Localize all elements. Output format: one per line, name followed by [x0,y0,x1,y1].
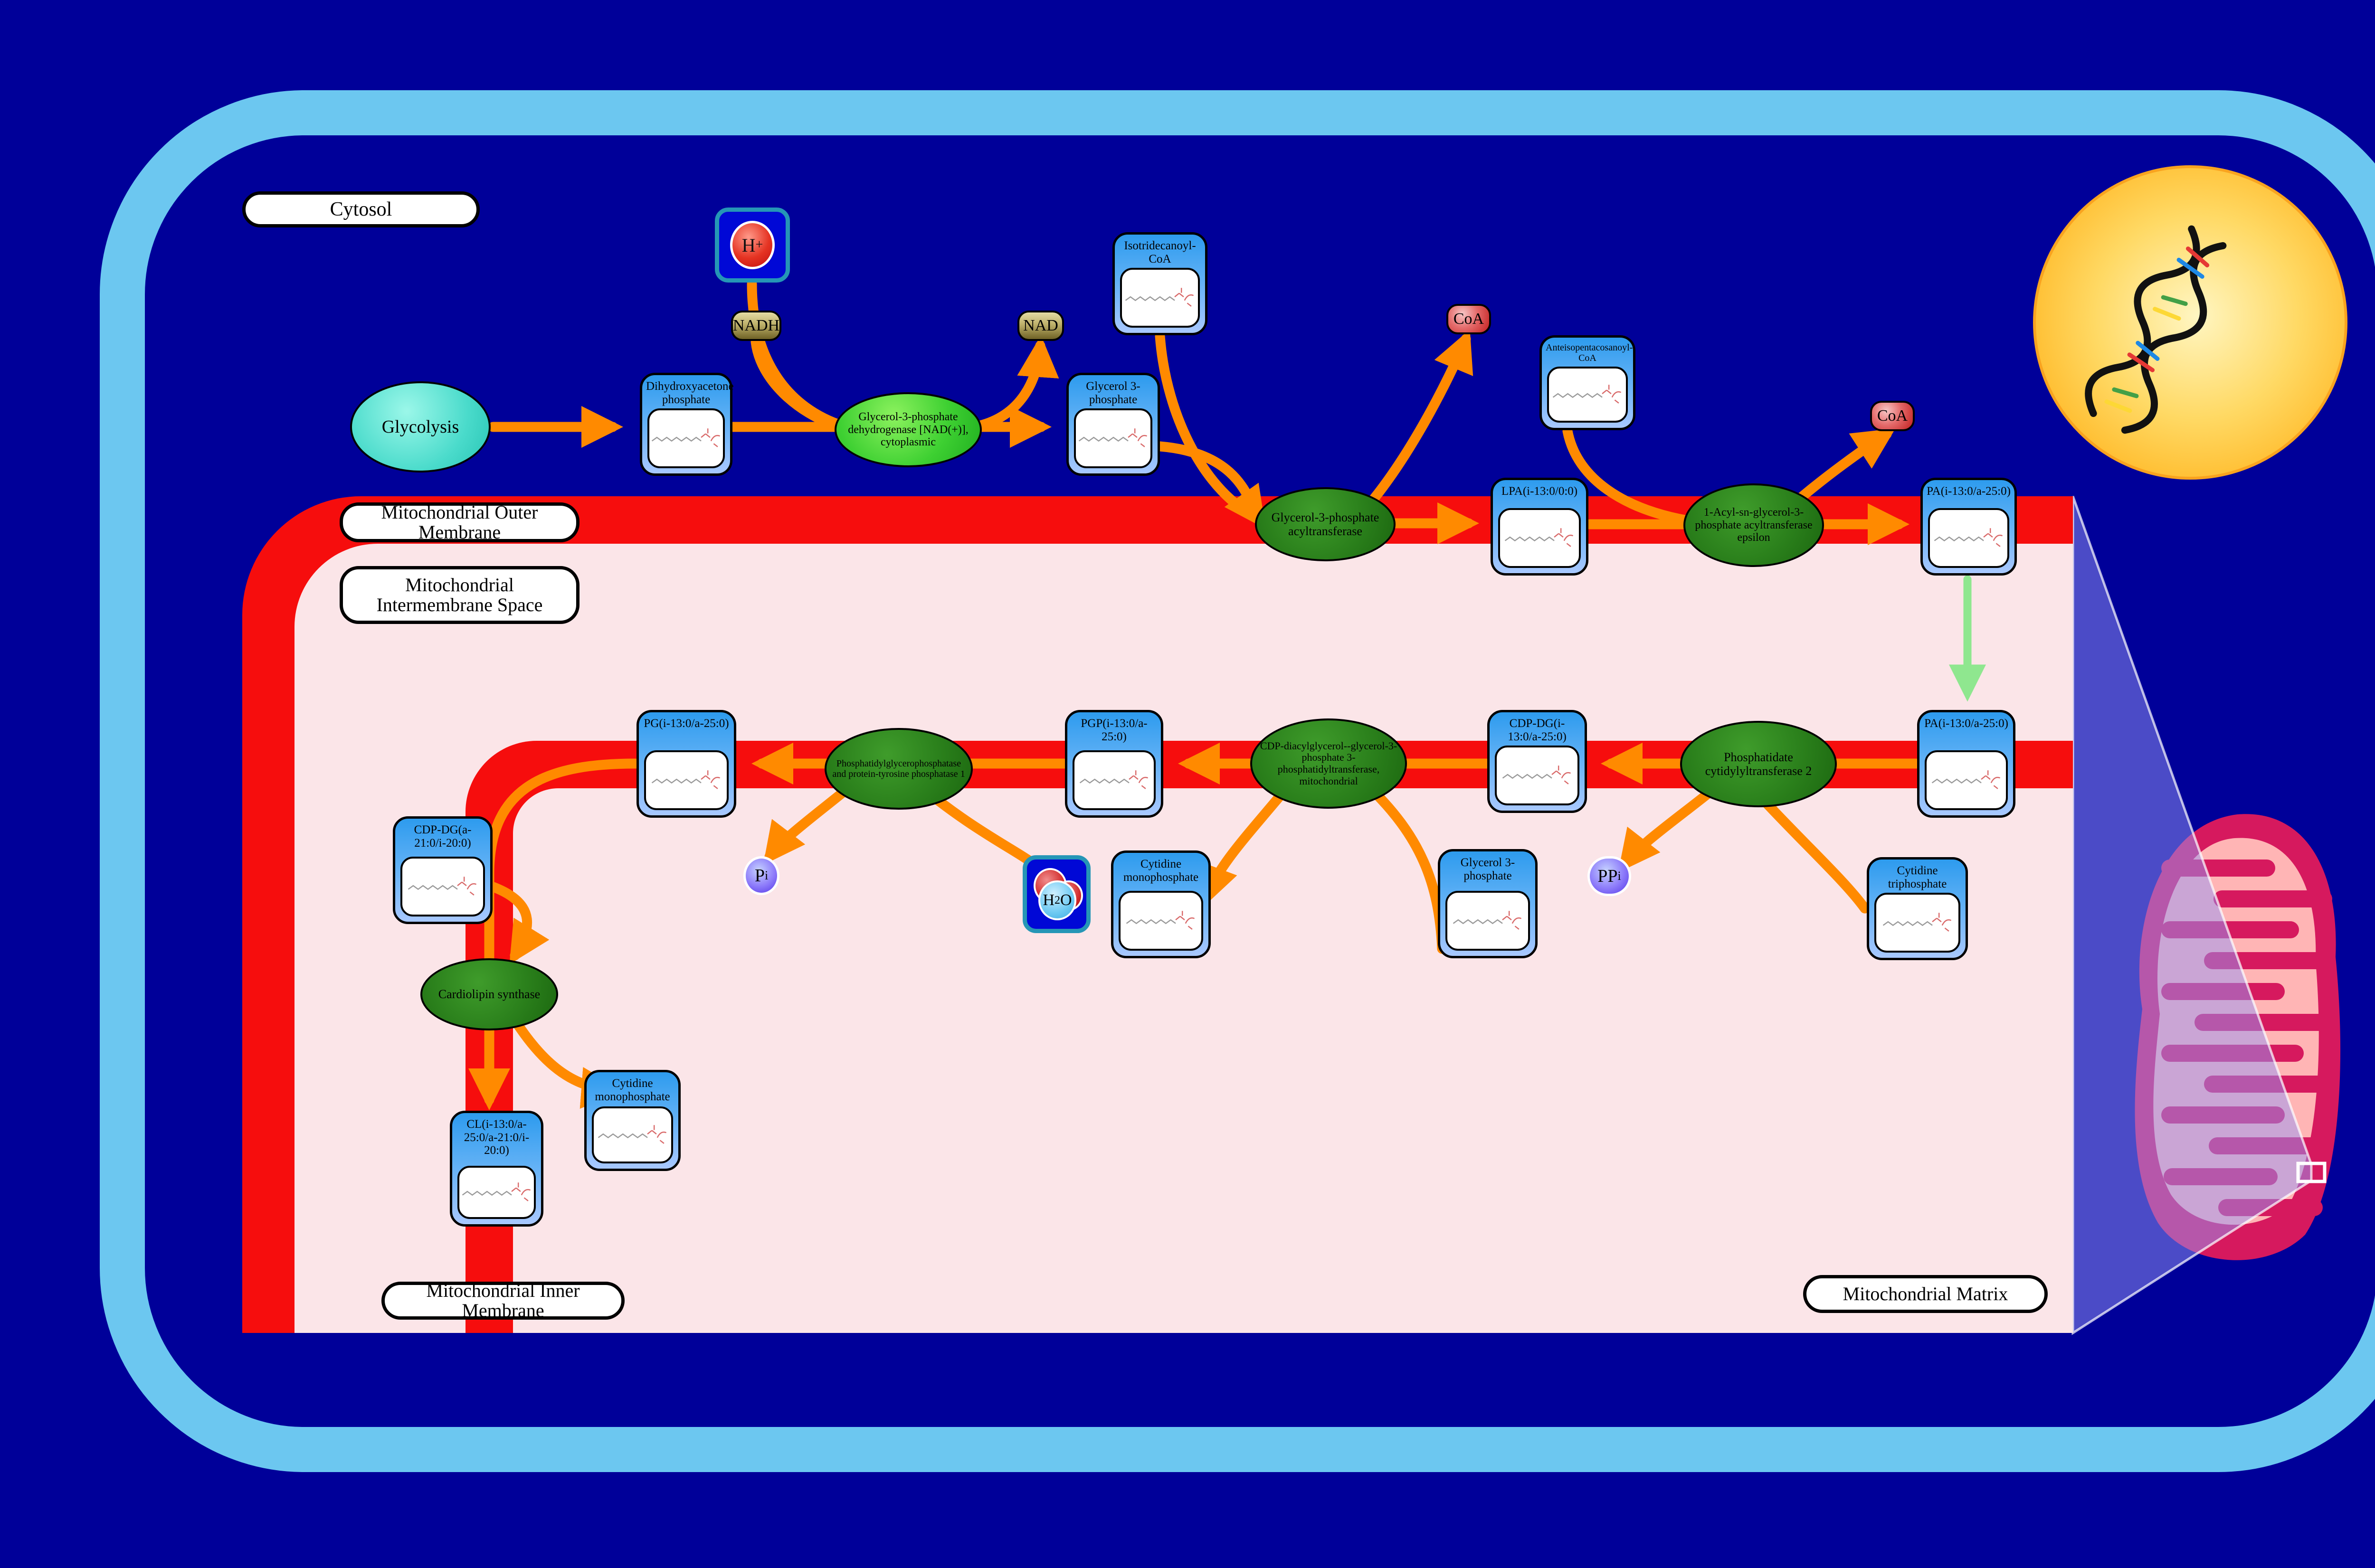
h2o-label: H2O [1038,880,1076,920]
metabolite-ctp[interactable]: Cytidine triphosphate [1867,857,1968,960]
molecule-structure [1498,508,1581,568]
nad-badge[interactable]: NAD [1017,311,1064,341]
metabolite-title: PGP(i-13:0/a-25:0) [1067,712,1161,744]
metabolite-title: Anteisopentacosanoyl-CoA [1542,338,1633,364]
metabolite-title: PA(i-13:0/a-25:0) [1919,712,2013,731]
metabolite-anteisopentacosanoyl-coa[interactable]: Anteisopentacosanoyl-CoA [1539,335,1635,430]
molecule-structure [400,857,485,916]
arrow-coa1-product [1358,339,1466,517]
metabolite-title: PA(i-13:0/a-25:0) [1923,480,2014,499]
molecule-structure [592,1106,673,1163]
h2o-badge[interactable]: H2O [1027,860,1086,929]
metabolite-g3p-cytosol[interactable]: Glycerol 3-phosphate [1066,373,1160,476]
process-glycolysis[interactable]: Glycolysis [350,381,491,472]
metabolite-title: CL(i-13:0/a-25:0/a-21:0/i-20:0) [452,1113,541,1158]
molecule-structure [1547,367,1628,423]
h2o-container: H2O [1023,855,1091,933]
coa-badge-2[interactable]: CoA [1870,401,1915,431]
metabolite-title: Cytidine monophosphate [1113,853,1208,885]
metabolite-title: PG(i-13:0/a-25:0) [639,712,734,731]
enzyme-gpat[interactable]: Glycerol-3-phosphate acyltransferase [1255,487,1396,561]
h-plus-container: H+ [715,208,790,283]
metabolite-pa-inner[interactable]: PA(i-13:0/a-25:0) [1917,710,2015,818]
metabolite-title: Glycerol 3-phosphate [1069,375,1158,407]
molecule-structure [647,408,725,468]
molecule-structure [1120,268,1200,328]
metabolite-pgp[interactable]: PGP(i-13:0/a-25:0) [1065,710,1163,818]
label-outer-membrane: Mitochondrial Outer Membrane [340,502,579,542]
coa-badge-1[interactable]: CoA [1446,304,1491,334]
molecule-structure [1928,508,2009,568]
enzyme-ptpmt1[interactable]: Phosphatidylglycerophosphatase and prote… [825,728,973,810]
metabolite-title: Cytidine monophosphate [587,1072,678,1104]
molecule-structure [1119,891,1203,951]
enzyme-pgs1[interactable]: CDP-diacylglycerol--glycerol-3-phosphate… [1250,718,1407,809]
molecule-structure [1073,750,1156,810]
metabolite-cl[interactable]: CL(i-13:0/a-25:0/a-21:0/i-20:0) [450,1111,543,1227]
molecule-structure [1495,746,1579,805]
metabolite-cdp-dg-inner[interactable]: CDP-DG(i-13:0/a-25:0) [1487,710,1587,813]
enzyme-gpd-cytoplasmic[interactable]: Glycerol-3-phosphate dehydrogenase [NAD(… [835,392,982,467]
h-plus-badge[interactable]: H+ [730,221,775,269]
pi-badge[interactable]: Pi [743,856,779,895]
metabolite-pa-outer[interactable]: PA(i-13:0/a-25:0) [1920,478,2017,576]
metabolite-lpa[interactable]: LPA(i-13:0/0:0) [1491,478,1588,576]
metabolite-title: CDP-DG(i-13:0/a-25:0) [1490,712,1585,744]
molecule-structure [644,750,729,810]
metabolite-cmp-mid[interactable]: Cytidine monophosphate [1111,850,1211,958]
arrow-cmpmid-product [1206,784,1290,897]
arrow-g3pmid-substrate [1368,786,1442,949]
metabolite-g3p-mid[interactable]: Glycerol 3-phosphate [1438,849,1538,958]
metabolite-title: Cytidine triphosphate [1869,860,1966,891]
arrow-pg-to-cls-to-cl [489,764,636,1100]
nadh-badge[interactable]: NADH [731,311,781,341]
molecule-structure [1925,750,2008,810]
label-cytosol: Cytosol [242,191,480,227]
metabolite-title: Dihydroxyacetone phosphate [642,375,730,407]
molecule-structure [457,1166,536,1219]
pathway-canvas: Cytosol Mitochondrial Outer Membrane Mit… [0,0,2375,1568]
enzyme-cardiolipin-synthase[interactable]: Cardiolipin synthase [420,958,558,1030]
molecule-structure [1874,893,1960,953]
metabolite-title: CDP-DG(a-21:0/i-20:0) [395,819,490,850]
molecule-structure [1074,408,1152,468]
metabolite-title: Isotridecanoyl-CoA [1115,235,1205,266]
enzyme-agpat-epsilon[interactable]: 1-Acyl-sn-glycerol-3-phosphate acyltrans… [1683,483,1824,567]
enzyme-cds2[interactable]: Phosphatidate cytidylyltransferase 2 [1680,721,1837,807]
ppi-badge[interactable]: PPi [1587,856,1631,896]
arrow-cdpdglower-to-cls [494,887,527,955]
metabolite-cdp-dg-lower[interactable]: CDP-DG(a-21:0/i-20:0) [393,816,493,924]
metabolite-title: LPA(i-13:0/0:0) [1493,480,1586,499]
metabolite-isotridecanoyl-coa[interactable]: Isotridecanoyl-CoA [1112,232,1207,335]
metabolite-pg[interactable]: PG(i-13:0/a-25:0) [636,710,736,818]
metabolite-dhap[interactable]: Dihydroxyacetone phosphate [640,373,732,476]
metabolite-title: Glycerol 3-phosphate [1440,851,1535,883]
arrow-nad-product [978,346,1040,426]
molecule-structure [1445,891,1530,951]
label-matrix: Mitochondrial Matrix [1803,1275,2048,1313]
label-inner-membrane: Mitochondrial Inner Membrane [381,1282,625,1320]
metabolite-cmp-lower[interactable]: Cytidine monophosphate [584,1070,681,1171]
label-intermembrane-space: Mitochondrial Intermembrane Space [340,566,579,624]
